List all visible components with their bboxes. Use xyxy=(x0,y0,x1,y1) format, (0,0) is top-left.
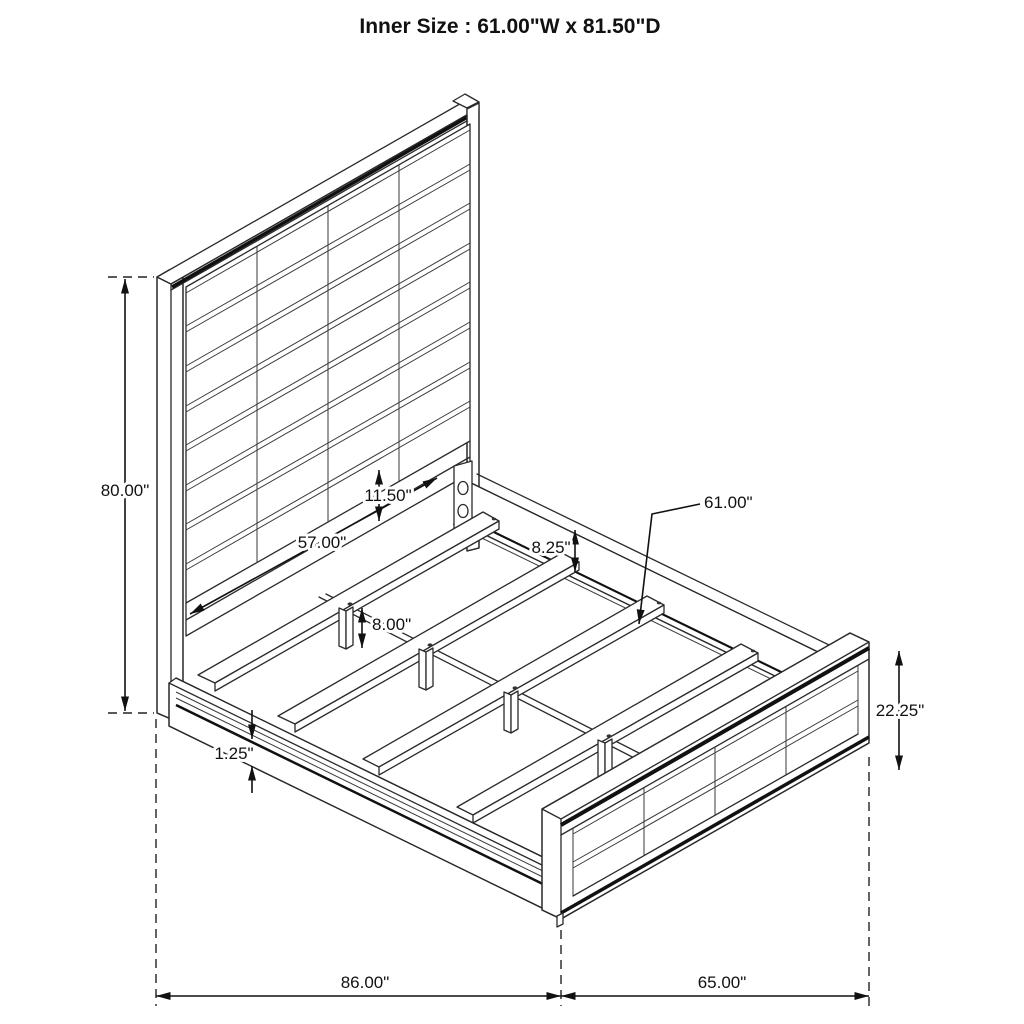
dim-footboard-height: 22.25" xyxy=(876,651,925,770)
headboard-left-post xyxy=(157,270,183,719)
dim-label-headboard-panel-gap: 11.50" xyxy=(364,486,411,505)
footboard-foot xyxy=(557,913,563,927)
dim-label-footboard-height: 22.25" xyxy=(876,701,925,720)
bed-dimension-diagram: 80.00" 57.00" 11.50" 8.25" 61.00" 8.00" … xyxy=(0,0,1024,1024)
dim-label-support-leg-height: 8.00" xyxy=(372,615,411,634)
bed-dimension-diagram-page: 80.00" 57.00" 11.50" 8.25" 61.00" 8.00" … xyxy=(0,0,1024,1024)
center-leg-3 xyxy=(504,691,518,733)
dim-label-headboard-height: 80.00" xyxy=(101,481,150,500)
dim-label-overall-depth: 86.00" xyxy=(341,973,390,992)
dim-label-inner-rail-span: 57.00" xyxy=(298,533,347,552)
dim-label-slat-length: 61.00" xyxy=(704,493,753,512)
slat-2 xyxy=(278,553,579,732)
dim-headboard-height: 80.00" xyxy=(101,277,154,713)
center-leg-1 xyxy=(339,607,353,649)
dim-label-side-rail-width: 8.25" xyxy=(531,538,570,557)
center-leg-2 xyxy=(419,648,433,690)
dim-label-overall-width: 65.00" xyxy=(698,973,747,992)
dim-label-rail-lip-thickness: 1.25" xyxy=(214,744,253,763)
dim-support-leg-height: 8.00" xyxy=(362,608,411,648)
page-title: Inner Size : 61.00"W x 81.50"D xyxy=(359,15,660,38)
